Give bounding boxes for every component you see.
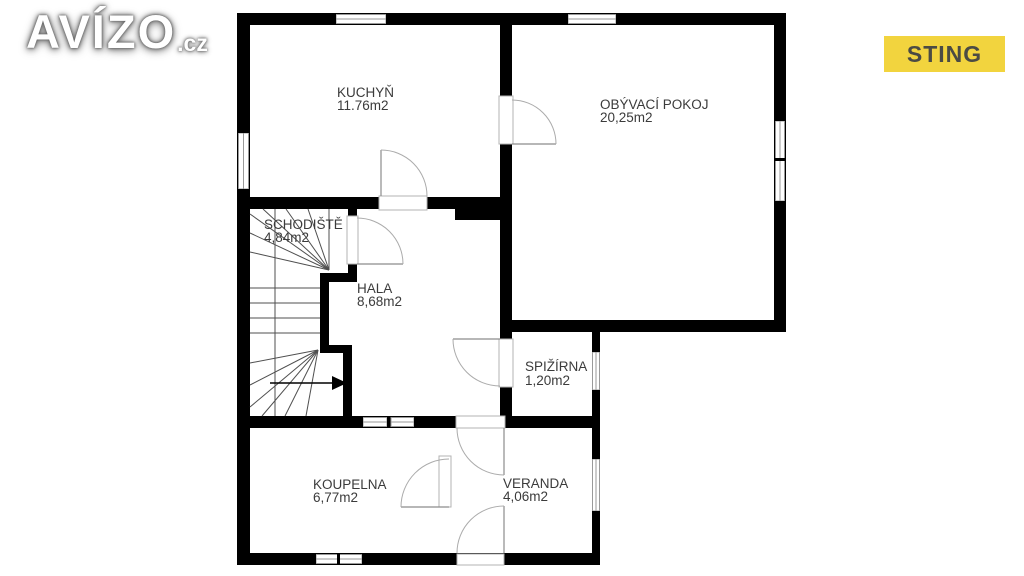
room-label-veranda: VERANDA 4,06m2 <box>503 476 568 504</box>
window-kitchen-left <box>237 130 250 192</box>
window-spizirna-right <box>592 349 600 393</box>
room-label-spizirna: SPIŽÍRNA 1,20m2 <box>525 359 587 388</box>
window-livingroom-top <box>565 13 619 25</box>
room-area: 4,06m2 <box>503 489 548 504</box>
room-area: 6,77m2 <box>313 490 358 505</box>
room-area: 20,25m2 <box>600 110 653 125</box>
room-label-obyvaci-pokoj: OBÝVACÍ POKOJ 20,25m2 <box>600 97 709 125</box>
room-area: 1,20m2 <box>525 373 570 388</box>
room-label-koupelna: KOUPELNA 6,77m2 <box>313 477 387 505</box>
window-koupelna-bottom <box>313 553 365 565</box>
window-hala-koupelna-2 <box>391 416 417 428</box>
floor-plan: KUCHYŇ 11.76m2 OBÝVACÍ POKOJ 20,25m2 SCH… <box>0 0 1024 576</box>
door-koupelna <box>401 456 451 507</box>
window-kitchen-top <box>333 13 389 25</box>
room-area: 11.76m2 <box>337 98 389 113</box>
room-label-kuchyn: KUCHYŇ 11.76m2 <box>337 85 394 113</box>
page: AVÍZO .cz STING <box>0 0 1024 576</box>
room-area: 4,84m2 <box>264 230 309 245</box>
door-schodiste-hala <box>347 216 403 264</box>
room-area: 8,68m2 <box>357 294 402 309</box>
stair-direction-arrow <box>270 376 347 390</box>
door-kitchen-hala <box>379 150 427 210</box>
room-label-schodiste: SCHODIŠTĚ 4,84m2 <box>264 217 343 245</box>
room-name: SPIŽÍRNA <box>525 359 587 374</box>
window-hala-koupelna-1 <box>360 416 390 428</box>
door-hala-veranda <box>456 416 505 475</box>
window-veranda-right <box>592 456 600 514</box>
room-label-hala: HALA 8,68m2 <box>357 281 402 309</box>
door-spizirna-hala <box>453 339 513 387</box>
window-livingroom-right <box>774 118 786 204</box>
door-veranda-entrance <box>457 506 504 565</box>
door-kitchen-livingroom <box>499 96 556 144</box>
